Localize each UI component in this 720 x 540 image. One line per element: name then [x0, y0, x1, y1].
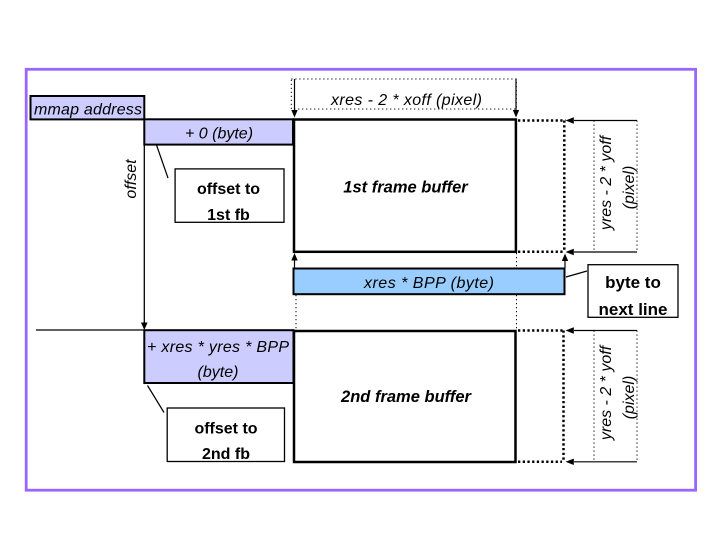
svg-text:offset to: offset to — [197, 181, 260, 198]
svg-text:next line: next line — [599, 300, 668, 319]
svg-text:+ 0 (byte): + 0 (byte) — [185, 126, 253, 143]
svg-text:(byte): (byte) — [198, 364, 239, 381]
svg-text:1st fb: 1st fb — [207, 207, 250, 224]
svg-text:+ xres * yres * BPP: + xres * yres * BPP — [147, 339, 289, 356]
svg-text:byte to: byte to — [605, 273, 661, 292]
svg-text:xres * BPP (byte): xres * BPP (byte) — [363, 275, 494, 292]
svg-text:2nd frame buffer: 2nd frame buffer — [340, 388, 472, 406]
svg-text:yres - 2 * yoff: yres - 2 * yoff — [598, 344, 615, 441]
svg-text:(pixel): (pixel) — [621, 166, 638, 210]
svg-text:offset: offset — [123, 159, 140, 199]
svg-text:xres - 2 * xoff (pixel): xres - 2 * xoff (pixel) — [330, 92, 482, 109]
svg-text:(pixel): (pixel) — [621, 376, 638, 420]
svg-text:offset to: offset to — [194, 421, 257, 438]
svg-text:yres - 2 * yoff: yres - 2 * yoff — [598, 134, 615, 231]
svg-text:2nd fb: 2nd fb — [202, 446, 250, 463]
svg-text:mmap address: mmap address — [34, 102, 142, 119]
svg-text:1st frame buffer: 1st frame buffer — [343, 179, 469, 197]
